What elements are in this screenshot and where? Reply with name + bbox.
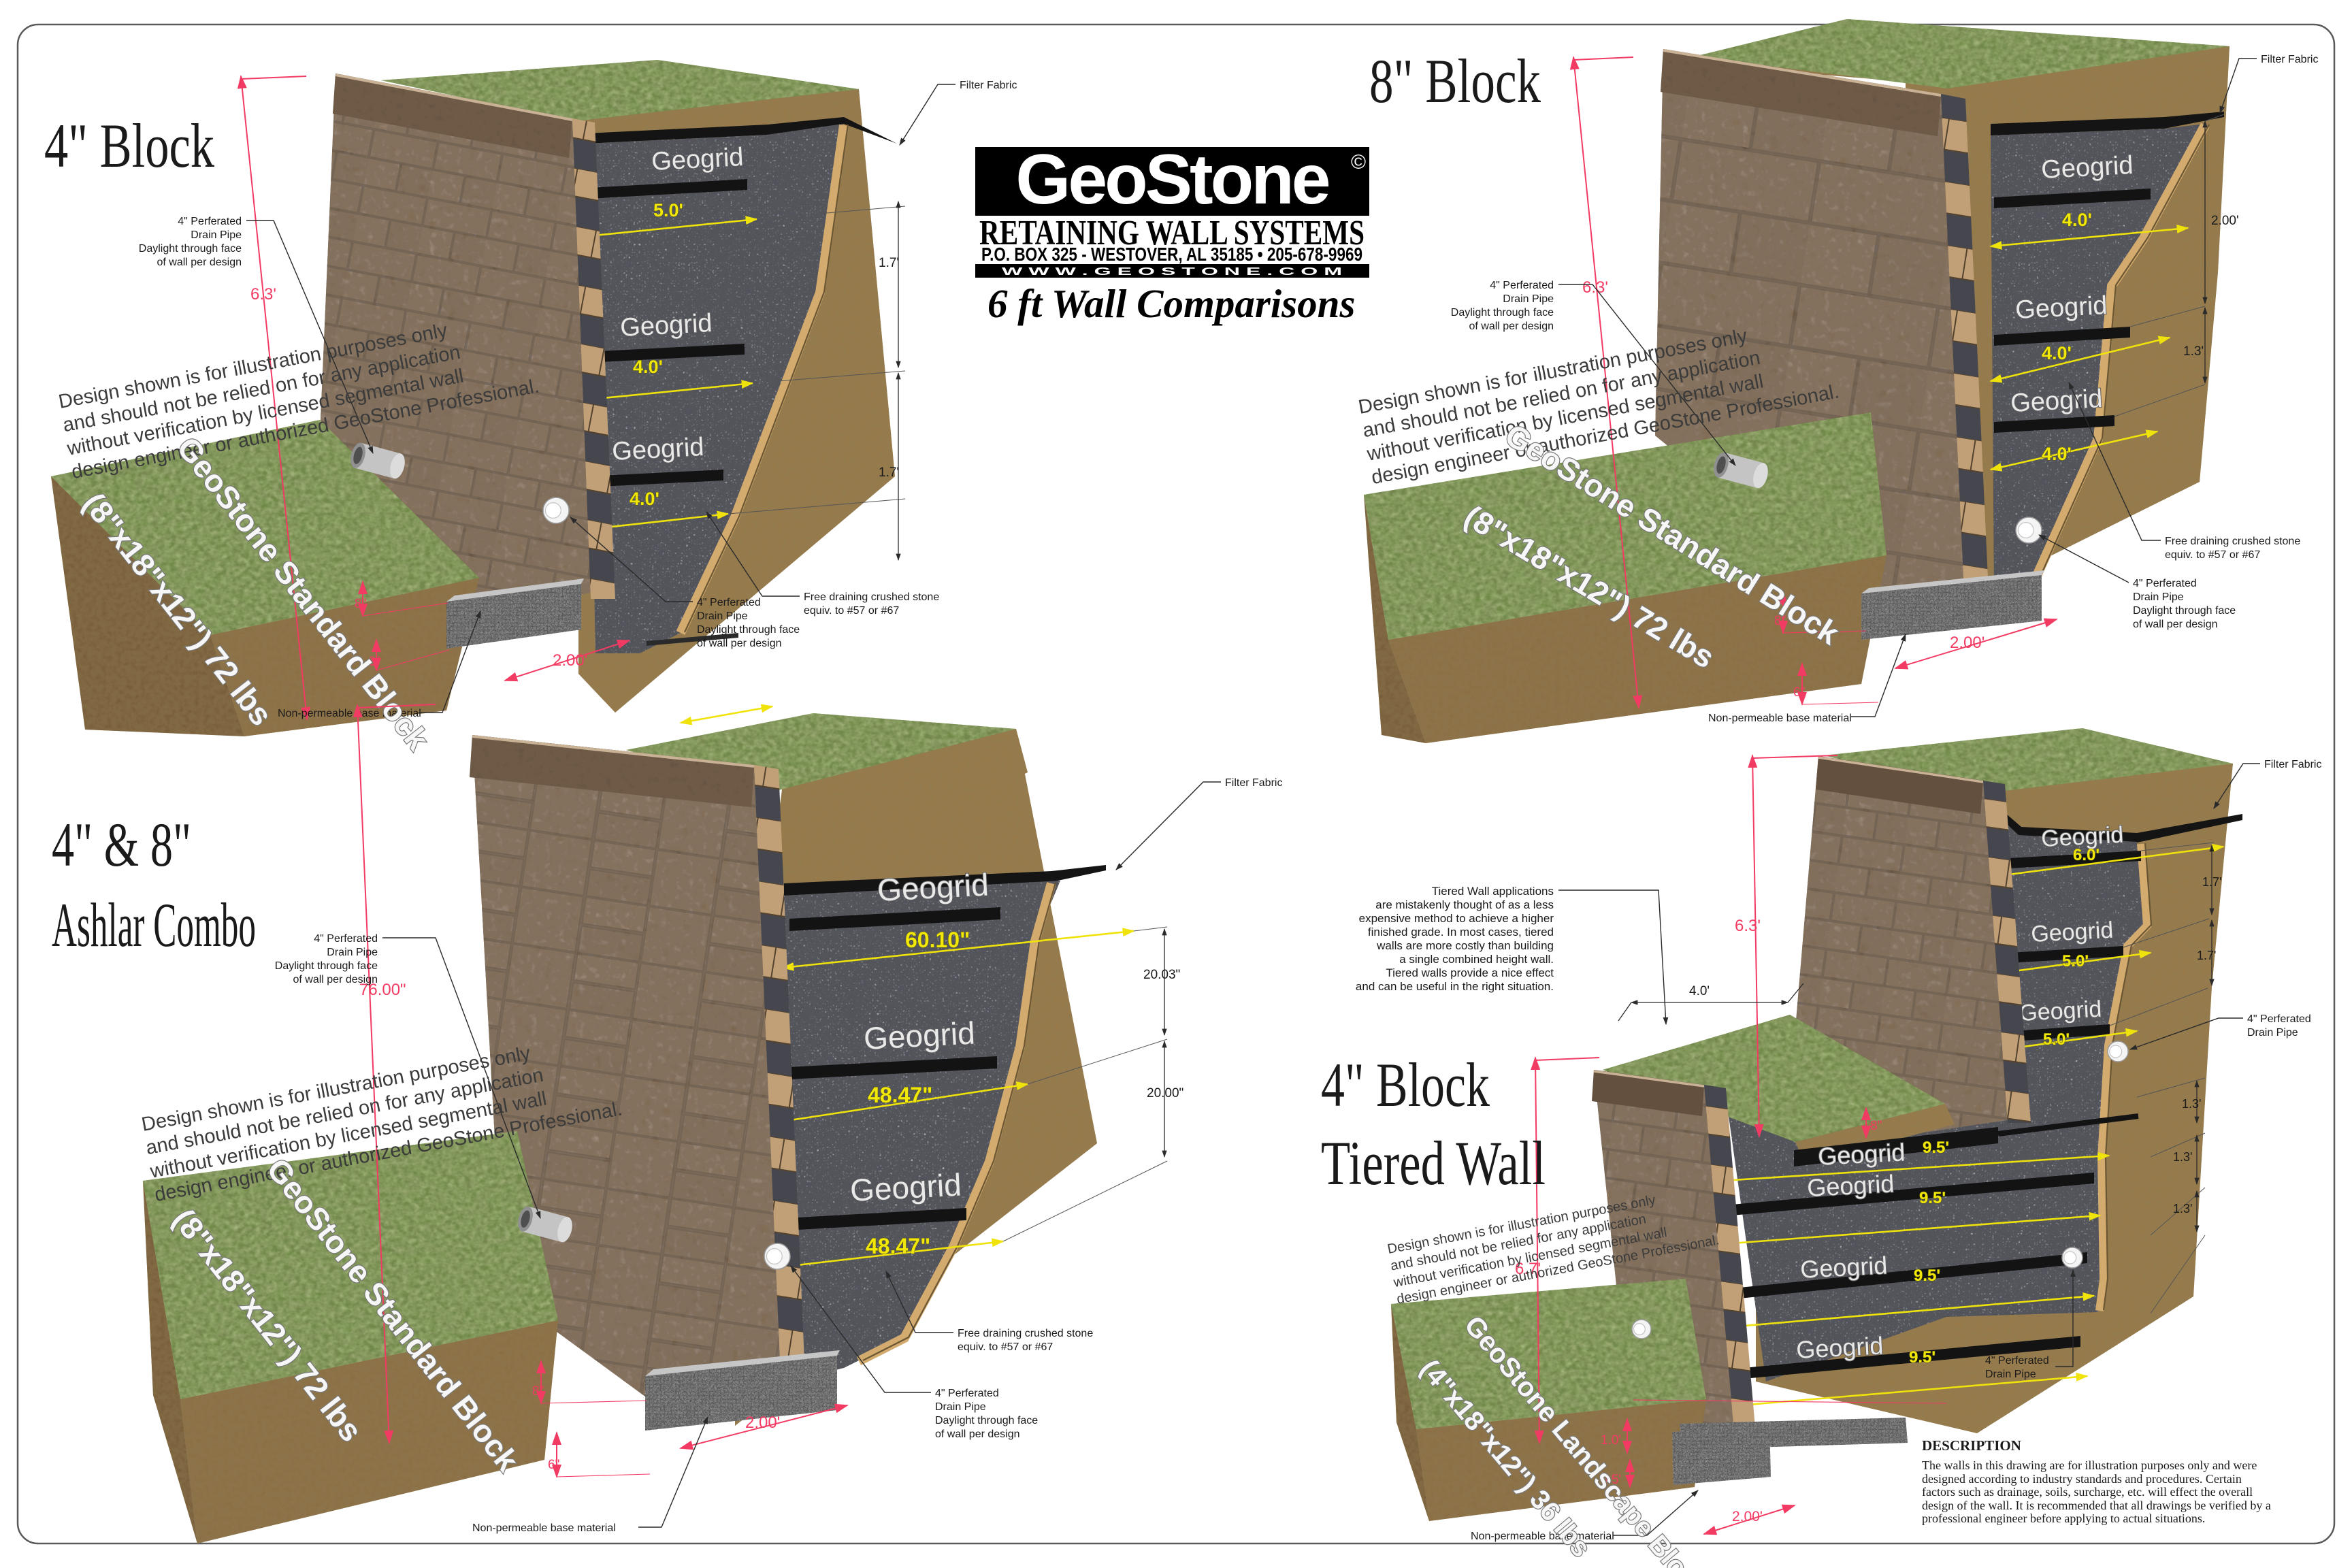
svg-text:Daylight through face: Daylight through face	[2133, 605, 2236, 617]
svg-text:Tiered Wall applications: Tiered Wall applications	[1432, 885, 1554, 898]
svg-text:Geogrid: Geogrid	[2030, 917, 2114, 947]
svg-text:Geogrid: Geogrid	[2040, 151, 2134, 184]
svg-text:4.0': 4.0'	[2062, 210, 2092, 230]
svg-text:48.47": 48.47"	[868, 1083, 932, 1107]
svg-text:4" Perferated: 4" Perferated	[1985, 1355, 2049, 1367]
svg-text:Daylight through face: Daylight through face	[1451, 307, 1554, 318]
svg-text:1.7': 1.7'	[2202, 875, 2221, 889]
svg-text:Free draining crushed stone: Free draining crushed stone	[958, 1328, 1093, 1339]
svg-text:4" Perferated: 4" Perferated	[2133, 578, 2197, 589]
svg-text:2.00': 2.00'	[2211, 214, 2239, 228]
svg-text:©: ©	[1351, 151, 1366, 174]
svg-text:4" Perferated: 4" Perferated	[697, 597, 761, 608]
svg-text:equiv. to #57 or #67: equiv. to #57 or #67	[2165, 549, 2260, 561]
svg-text:6": 6"	[548, 1458, 559, 1472]
svg-text:GeoStone: GeoStone	[1015, 140, 1328, 219]
svg-text:Geogrid: Geogrid	[651, 143, 744, 176]
svg-text:20.00": 20.00"	[1147, 1086, 1183, 1100]
svg-text:4" Perferated: 4" Perferated	[1490, 280, 1554, 291]
svg-text:Drain Pipe: Drain Pipe	[327, 947, 378, 958]
svg-text:5.0': 5.0'	[653, 200, 683, 220]
svg-text:of wall per design: of wall per design	[935, 1428, 1020, 1440]
svg-text:Drain Pipe: Drain Pipe	[1985, 1369, 2036, 1380]
svg-text:walls are more costly than bui: walls are more costly than building	[1376, 939, 1554, 952]
svg-text:2.00': 2.00'	[1732, 1509, 1763, 1524]
svg-text:4.0': 4.0'	[633, 357, 663, 377]
svg-text:are mistakenly thought of as a: are mistakenly thought of as a less	[1375, 898, 1554, 911]
svg-text:Filter Fabric: Filter Fabric	[960, 80, 1017, 91]
svg-text:4" & 8": 4" & 8"	[52, 810, 191, 879]
svg-text:1.3': 1.3'	[2173, 1202, 2192, 1215]
svg-text:Non-permeable base material: Non-permeable base material	[1708, 713, 1852, 724]
svg-text:of wall per design: of wall per design	[293, 974, 378, 985]
svg-text:designed according to industry: designed according to industry standards…	[1922, 1472, 2242, 1486]
svg-text:Geogrid: Geogrid	[1799, 1251, 1888, 1284]
svg-text:2.00': 2.00'	[1950, 634, 1984, 652]
svg-text:equiv. to #57 or #67: equiv. to #57 or #67	[958, 1341, 1053, 1353]
svg-text:20.03": 20.03"	[1143, 968, 1180, 982]
svg-text:professional engineer before a: professional engineer before applying to…	[1922, 1512, 2205, 1525]
svg-text:Drain Pipe: Drain Pipe	[935, 1401, 986, 1413]
svg-text:8": 8"	[355, 597, 366, 611]
svg-text:P.O. BOX 325 - WESTOVER, AL 3: P.O. BOX 325 - WESTOVER, AL 35185 • 205-…	[981, 244, 1362, 265]
svg-text:5.0': 5.0'	[2062, 952, 2089, 970]
svg-text:Drain Pipe: Drain Pipe	[1503, 293, 1554, 305]
svg-text:factors such as drainage, soil: factors such as drainage, soils, surchar…	[1922, 1485, 2253, 1499]
svg-text:4" Block: 4" Block	[44, 111, 214, 180]
svg-text:4.0': 4.0'	[2042, 444, 2072, 464]
svg-text:4.0': 4.0'	[630, 489, 659, 509]
svg-text:Filter Fabric: Filter Fabric	[1225, 777, 1282, 789]
svg-text:9.5': 9.5'	[1914, 1267, 1940, 1285]
svg-text:DESCRIPTION: DESCRIPTION	[1922, 1437, 2021, 1454]
svg-text:Geogrid: Geogrid	[611, 433, 704, 466]
svg-text:1.7': 1.7'	[2197, 949, 2216, 962]
svg-text:6.3': 6.3'	[1735, 917, 1761, 935]
svg-text:8": 8"	[1870, 1119, 1882, 1133]
svg-text:equiv. to #57 or #67: equiv. to #57 or #67	[804, 605, 899, 617]
svg-text:W W W . G E O S T O N E . C O: W W W . G E O S T O N E . C O M	[1002, 266, 1342, 278]
svg-text:Drain Pipe: Drain Pipe	[191, 229, 242, 241]
svg-text:6.3': 6.3'	[250, 285, 276, 304]
svg-text:48.47": 48.47"	[866, 1234, 930, 1258]
svg-text:Daylight through face: Daylight through face	[275, 960, 378, 972]
svg-text:Tiered Wall: Tiered Wall	[1321, 1128, 1546, 1198]
svg-text:4.0': 4.0'	[1689, 984, 1710, 998]
svg-text:Free draining crushed stone: Free draining crushed stone	[804, 591, 939, 603]
svg-text:Free draining crushed stone: Free draining crushed stone	[2165, 536, 2300, 547]
svg-text:4" Perferated: 4" Perferated	[314, 933, 378, 945]
svg-text:design of the wall. It is rec: design of the wall. It is recommended th…	[1922, 1499, 2271, 1512]
svg-text:1.3': 1.3'	[2183, 344, 2204, 359]
svg-text:60.10": 60.10"	[905, 928, 970, 952]
svg-text:Geogrid: Geogrid	[877, 866, 990, 907]
svg-text:and can be useful in the right: and can be useful in the right situation…	[1356, 980, 1554, 993]
svg-text:8": 8"	[532, 1384, 544, 1399]
svg-text:4" Perferated: 4" Perferated	[178, 216, 242, 227]
svg-text:Geogrid: Geogrid	[2014, 291, 2108, 325]
svg-text:4" Block: 4" Block	[1321, 1050, 1490, 1120]
svg-text:finished grade. In most cases: finished grade. In most cases, tiered	[1368, 926, 1554, 938]
svg-text:a single combined height wall.: a single combined height wall.	[1399, 953, 1554, 966]
svg-text:Geogrid: Geogrid	[849, 1166, 962, 1207]
svg-text:Geogrid: Geogrid	[1795, 1331, 1884, 1364]
svg-text:of wall per design: of wall per design	[1469, 321, 1554, 332]
svg-text:Filter Fabric: Filter Fabric	[2261, 54, 2318, 65]
svg-text:expensive method to achieve a: expensive method to achieve a higher	[1359, 912, 1554, 925]
svg-text:Drain Pipe: Drain Pipe	[2247, 1027, 2298, 1039]
svg-text:of wall per design: of wall per design	[2133, 619, 2218, 630]
svg-text:Geogrid: Geogrid	[2010, 385, 2103, 418]
svg-text:6 ft Wall Comparisons: 6 ft Wall Comparisons	[987, 281, 1355, 326]
svg-text:Drain Pipe: Drain Pipe	[697, 610, 748, 622]
svg-text:Filter Fabric: Filter Fabric	[2264, 759, 2321, 770]
svg-text:5.0': 5.0'	[2043, 1030, 2070, 1049]
svg-text:1.7': 1.7'	[879, 256, 899, 270]
svg-text:1.0': 1.0'	[1601, 1433, 1621, 1448]
svg-text:2.00': 2.00'	[745, 1414, 780, 1432]
svg-text:Ashlar Combo: Ashlar Combo	[52, 890, 256, 960]
svg-text:6.0': 6.0'	[2073, 846, 2100, 864]
svg-text:Daylight through face: Daylight through face	[139, 243, 242, 255]
svg-text:Geogrid: Geogrid	[2019, 996, 2102, 1026]
svg-text:of wall per design: of wall per design	[697, 638, 782, 649]
svg-text:Tiered walls provide a nice ef: Tiered walls provide a nice effect	[1386, 966, 1554, 979]
svg-text:2.00': 2.00'	[553, 651, 587, 670]
svg-text:4.0': 4.0'	[2042, 343, 2072, 363]
svg-text:6": 6"	[1793, 685, 1805, 700]
svg-text:Drain Pipe: Drain Pipe	[2133, 591, 2184, 603]
svg-text:1.3': 1.3'	[2173, 1150, 2192, 1164]
svg-text:Non-permeable base material: Non-permeable base material	[472, 1522, 616, 1534]
svg-text:Daylight through face: Daylight through face	[697, 624, 800, 636]
svg-text:Geogrid: Geogrid	[1806, 1169, 1895, 1202]
svg-text:4" Perferated: 4" Perferated	[935, 1388, 999, 1399]
svg-text:Geogrid: Geogrid	[863, 1015, 976, 1056]
svg-text:1.3': 1.3'	[2182, 1097, 2201, 1111]
svg-text:9.5': 9.5'	[1923, 1139, 1949, 1157]
svg-text:1.7': 1.7'	[879, 465, 899, 480]
svg-text:Geogrid: Geogrid	[619, 309, 713, 342]
svg-text:9.5': 9.5'	[1919, 1189, 1946, 1207]
svg-text:4" Perferated: 4" Perferated	[2247, 1013, 2311, 1025]
svg-text:of wall per design: of wall per design	[157, 257, 242, 268]
svg-text:9.5': 9.5'	[1909, 1348, 1935, 1367]
svg-text:Geogrid: Geogrid	[1817, 1138, 1906, 1171]
svg-text:8" Block: 8" Block	[1369, 46, 1541, 116]
svg-text:Daylight through face: Daylight through face	[935, 1415, 1038, 1426]
svg-text:The walls in this drawing are: The walls in this drawing are for illust…	[1922, 1458, 2257, 1472]
